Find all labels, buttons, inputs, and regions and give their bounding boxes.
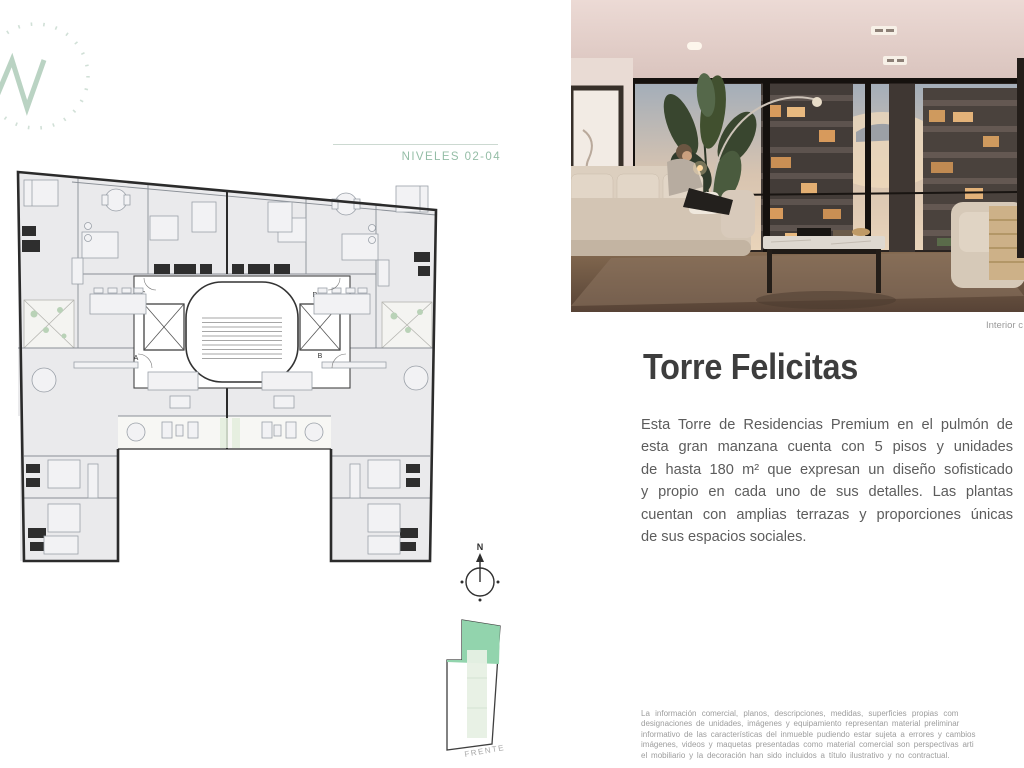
brochure-page: NIVELES 02-04 <box>0 0 1024 768</box>
ceiling <box>571 0 1024 82</box>
level-label: NIVELES 02-04 <box>333 151 501 163</box>
stair-racetrack <box>186 282 298 382</box>
disclaimer-line: el mobiliario y la decoración han sido i… <box>641 751 1024 761</box>
paragraph-line: de hasta 180 m² que expresan un diseño s… <box>641 459 1013 481</box>
paragraph-line: de sus espacios sociales. <box>641 526 1013 548</box>
brand-logo <box>0 10 100 145</box>
photo-caption: Interior c <box>986 320 1024 331</box>
logo-letter-ring <box>0 24 88 128</box>
paragraph-line: y propio en cada uno de sus detalles. La… <box>641 481 1013 503</box>
floor-plan: C D A B <box>16 168 446 568</box>
body-paragraph: Esta Torre de Residencias Premium en el … <box>641 414 1013 548</box>
disclaimer-line: La información comercial, planos, descri… <box>641 709 1024 719</box>
site-key-plan: FRENTE <box>443 612 507 764</box>
north-compass-icon: N <box>455 538 505 606</box>
level-rule <box>333 144 498 145</box>
balcony-column <box>889 84 915 256</box>
page-title: Torre Felicitas <box>643 346 858 388</box>
interior-photo <box>571 0 1024 312</box>
disclaimer-line: informativo de las características del i… <box>641 730 1024 740</box>
paragraph-line: esta gran manzana cuenta con 5 pisos y u… <box>641 436 1013 458</box>
tower-left <box>761 84 853 250</box>
disclaimer-line: imágenes, videos y maquetas presentadas … <box>641 740 1024 750</box>
north-label: N <box>477 542 484 552</box>
building-footprint <box>467 650 487 738</box>
unit-label-a: A <box>134 355 139 362</box>
interior-render <box>571 0 1024 312</box>
unit-label-b: B <box>318 353 323 360</box>
paragraph-line: Esta Torre de Residencias Premium en el … <box>641 414 1013 436</box>
plan-terrace-right <box>382 302 432 348</box>
plan-terrace-left <box>24 300 74 348</box>
logo-monogram-icon <box>0 60 44 108</box>
disclaimer-line: designaciones de unidades, imágenes y eq… <box>641 719 1024 729</box>
paragraph-line: cuentan con amplias terrazas y proporcio… <box>641 504 1013 526</box>
armchair <box>951 202 1024 288</box>
legal-disclaimer: La información comercial, planos, descri… <box>641 709 1024 761</box>
